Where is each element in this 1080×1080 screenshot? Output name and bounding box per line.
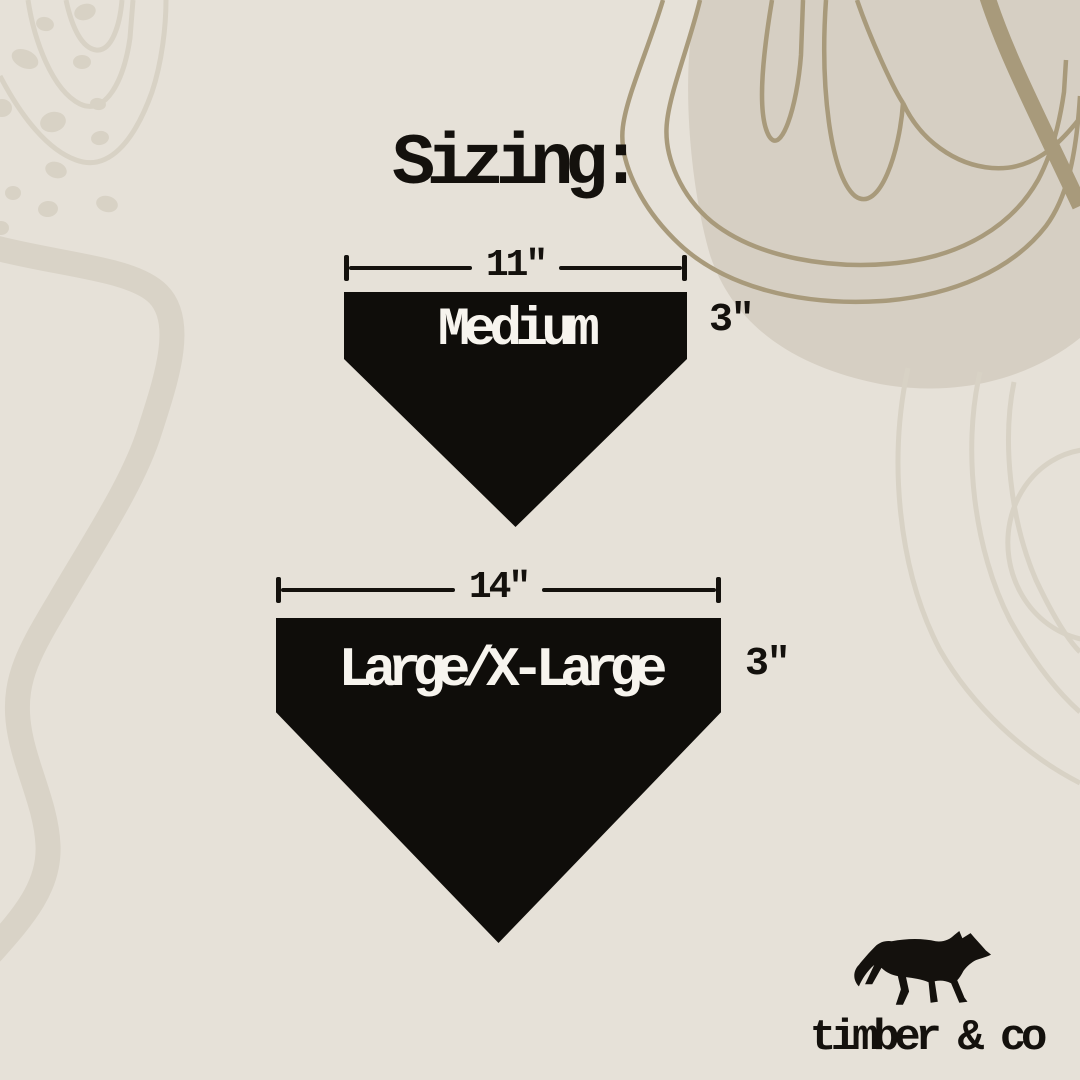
width-label-large: 14": [455, 573, 542, 603]
width-measurement-large: 14": [276, 575, 721, 605]
sizing-graphic: Sizing: 11" Medium 3" 14" Large/X-Large …: [0, 0, 1080, 1080]
measure-line: [542, 588, 716, 592]
size-name-large: Large/X-Large: [338, 618, 658, 698]
side-measurement-medium: 3": [709, 301, 752, 341]
page-title: Sizing:: [340, 128, 686, 200]
measure-line: [349, 266, 472, 270]
size-diagram-medium: 11" Medium 3": [344, 253, 687, 527]
light-swoosh-line: [0, 247, 172, 952]
size-name-medium: Medium: [438, 292, 594, 358]
measure-tick-right: [682, 255, 687, 281]
size-diagram-large: 14" Large/X-Large 3": [276, 575, 721, 943]
brand-logo: timber & co: [776, 930, 1076, 1060]
brand-name: timber & co: [776, 1016, 1076, 1060]
side-measurement-large: 3": [745, 645, 788, 685]
measure-line: [559, 266, 682, 270]
wolf-icon: [851, 930, 1001, 1014]
light-contour-arcs-right: [898, 368, 1080, 783]
bandana-shape-medium: Medium: [344, 292, 687, 527]
decorative-dots: [0, 1, 120, 235]
measure-line: [281, 588, 455, 592]
width-measurement-medium: 11": [344, 253, 687, 283]
bandana-shape-large: Large/X-Large: [276, 618, 721, 943]
measure-tick-right: [716, 577, 721, 603]
width-label-medium: 11": [472, 251, 559, 281]
